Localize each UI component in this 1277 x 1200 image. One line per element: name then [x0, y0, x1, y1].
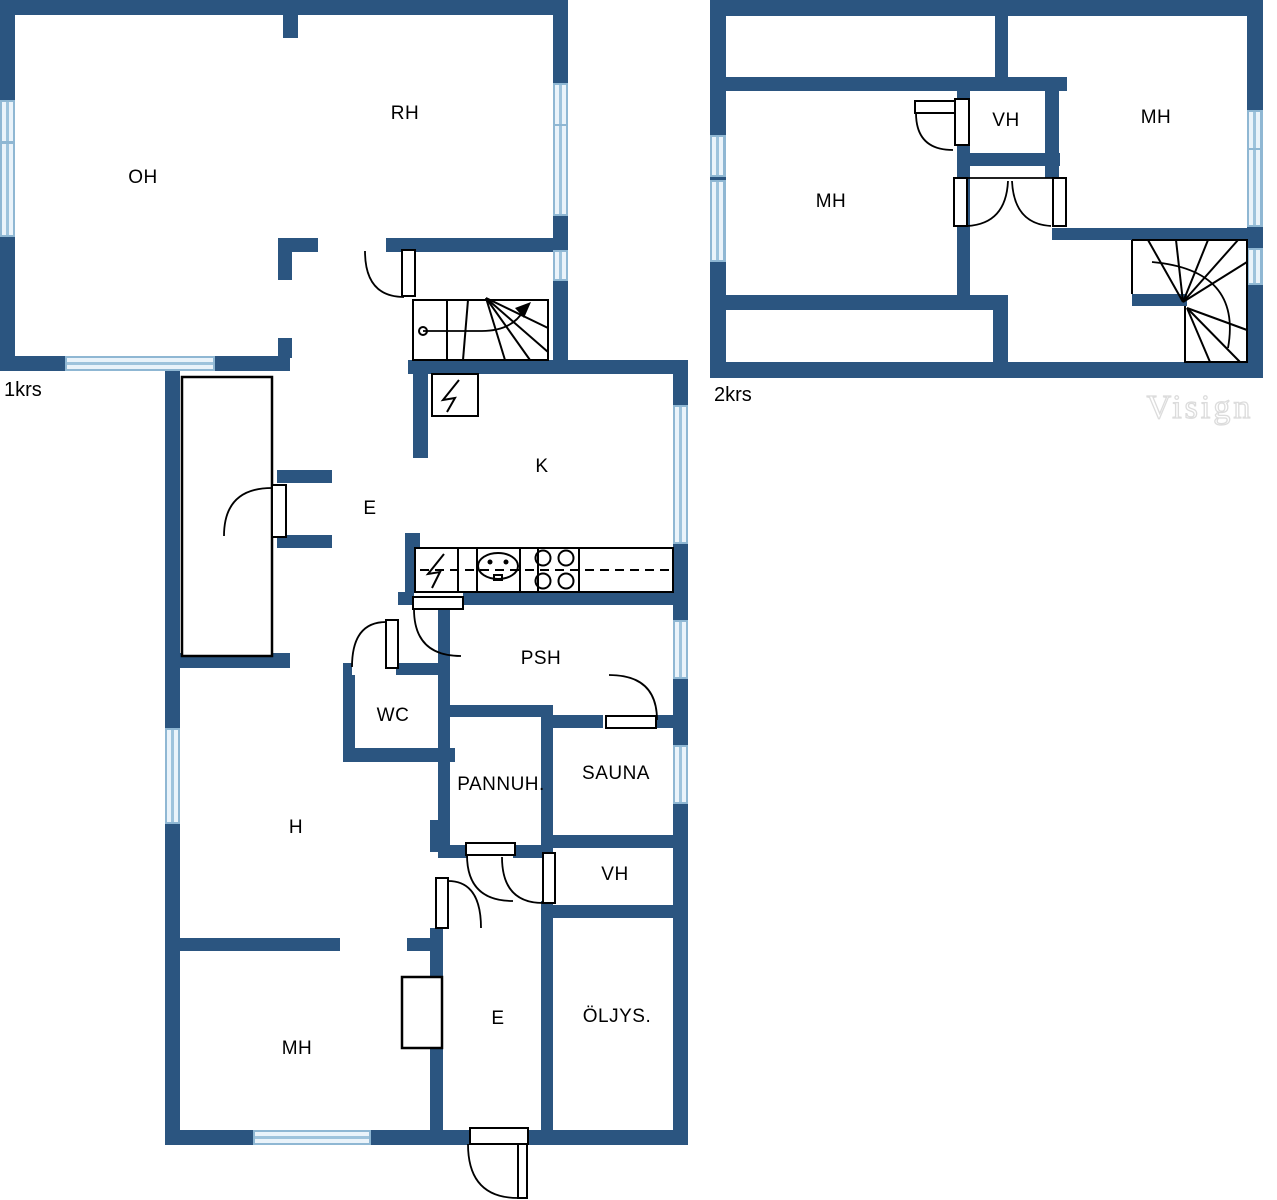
room-label-rh: RH	[391, 103, 419, 125]
room-label-oh: OH	[128, 167, 158, 189]
electrical-panel-icon	[432, 374, 478, 416]
visign-watermark: Visign	[1147, 389, 1254, 427]
room-label-vh-2krs: VH	[992, 110, 1019, 132]
room-label-pannuh: PANNUH.	[457, 774, 545, 796]
room-label-h: H	[289, 817, 303, 839]
room-label-wc: WC	[377, 705, 410, 727]
room-label-psh: PSH	[521, 648, 562, 670]
door-corridor	[365, 250, 415, 297]
door-vh	[502, 853, 555, 903]
floor-label-1krs: 1krs	[4, 379, 42, 402]
room-label-mh-right-2krs: MH	[1141, 107, 1172, 129]
kitchen-counter	[415, 548, 673, 592]
door-psh	[413, 597, 463, 656]
stairs-1krs	[413, 298, 548, 360]
floor-label-2krs: 2krs	[714, 384, 752, 407]
door-sauna	[606, 675, 657, 728]
room-label-sauna: SAUNA	[582, 763, 650, 785]
door-vh-2krs	[915, 99, 969, 150]
room-label-e-lower: E	[491, 1008, 504, 1030]
room-label-k: K	[535, 456, 548, 478]
double-doors-2krs	[954, 178, 1066, 226]
door-entrance	[468, 1128, 528, 1198]
room-label-oljys: ÖLJYS.	[583, 1006, 651, 1028]
stairs-2krs	[1132, 240, 1247, 362]
floorplan-canvas: OH RH K E PSH WC PANNUH. SAUNA H VH MH E…	[0, 0, 1277, 1200]
room-label-mh-left-2krs: MH	[816, 191, 847, 213]
room-label-vh-1krs: VH	[601, 864, 628, 886]
room-label-mh-1krs: MH	[282, 1038, 313, 1060]
door-wc	[352, 620, 398, 668]
room-label-e-upper: E	[363, 498, 376, 520]
